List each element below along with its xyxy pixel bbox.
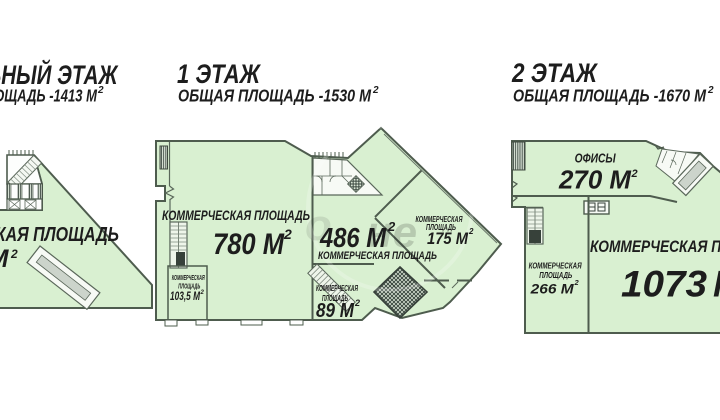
svg-text:486 М: 486 М <box>319 222 386 253</box>
svg-text:КОММЕРЧЕСКАЯ ПЛОЩАДЬ: КОММЕРЧЕСКАЯ ПЛОЩАДЬ <box>0 224 119 246</box>
svg-text:266 М: 266 М <box>530 281 574 297</box>
svg-text:ОБЩАЯ ПЛОЩАДЬ -1413 М: ОБЩАЯ ПЛОЩАДЬ -1413 М <box>0 86 97 106</box>
svg-text:2: 2 <box>97 85 104 96</box>
svg-text:2: 2 <box>574 278 580 287</box>
svg-text:2 ЭТАЖ: 2 ЭТАЖ <box>511 58 598 88</box>
svg-text:2: 2 <box>10 247 18 261</box>
svg-text:1073: 1073 <box>621 264 707 305</box>
svg-text:М: М <box>713 264 720 305</box>
svg-text:270 М: 270 М <box>558 165 632 195</box>
svg-text:2: 2 <box>707 85 714 96</box>
svg-text:КОММЕРЧЕСКАЯ: КОММЕРЧЕСКАЯ <box>529 262 582 271</box>
svg-text:ПЛОЩАДЬ: ПЛОЩАДЬ <box>178 283 200 290</box>
svg-text:2: 2 <box>354 298 360 308</box>
svg-text:ПЛОЩАДЬ: ПЛОЩАДЬ <box>539 271 572 280</box>
svg-text:175 М: 175 М <box>427 230 469 248</box>
svg-text:КОММЕРЧЕСКАЯ ПЛОЩАДЬ: КОММЕРЧЕСКАЯ ПЛОЩАДЬ <box>590 237 720 256</box>
svg-text:89 М: 89 М <box>316 300 355 322</box>
svg-text:М: М <box>0 245 10 273</box>
svg-text:1 ЭТАЖ: 1 ЭТАЖ <box>177 59 262 89</box>
svg-text:КОММЕРЧЕСКАЯ ПЛОЩАДЬ: КОММЕРЧЕСКАЯ ПЛОЩАДЬ <box>162 207 310 223</box>
svg-text:ОБЩАЯ ПЛОЩАДЬ -1670 М: ОБЩАЯ ПЛОЩАДЬ -1670 М <box>513 86 706 106</box>
svg-text:2: 2 <box>372 85 379 96</box>
svg-text:103,5 М: 103,5 М <box>170 291 200 303</box>
svg-text:780 М: 780 М <box>213 228 285 261</box>
svg-text:2: 2 <box>283 226 292 242</box>
svg-text:2: 2 <box>468 227 474 236</box>
svg-text:КОММЕРЧЕСКАЯ: КОММЕРЧЕСКАЯ <box>316 284 358 293</box>
svg-text:2: 2 <box>631 168 638 180</box>
svg-text:КОММЕРЧЕСКАЯ: КОММЕРЧЕСКАЯ <box>172 275 205 282</box>
svg-text:КОММЕРЧЕСКАЯ ПЛОЩАДЬ: КОММЕРЧЕСКАЯ ПЛОЩАДЬ <box>318 250 437 262</box>
svg-text:2: 2 <box>200 290 205 296</box>
svg-text:2: 2 <box>387 219 396 234</box>
svg-text:ОФИСЫ: ОФИСЫ <box>575 151 616 165</box>
svg-text:ОБЩАЯ ПЛОЩАДЬ -1530 М: ОБЩАЯ ПЛОЩАДЬ -1530 М <box>178 86 371 106</box>
